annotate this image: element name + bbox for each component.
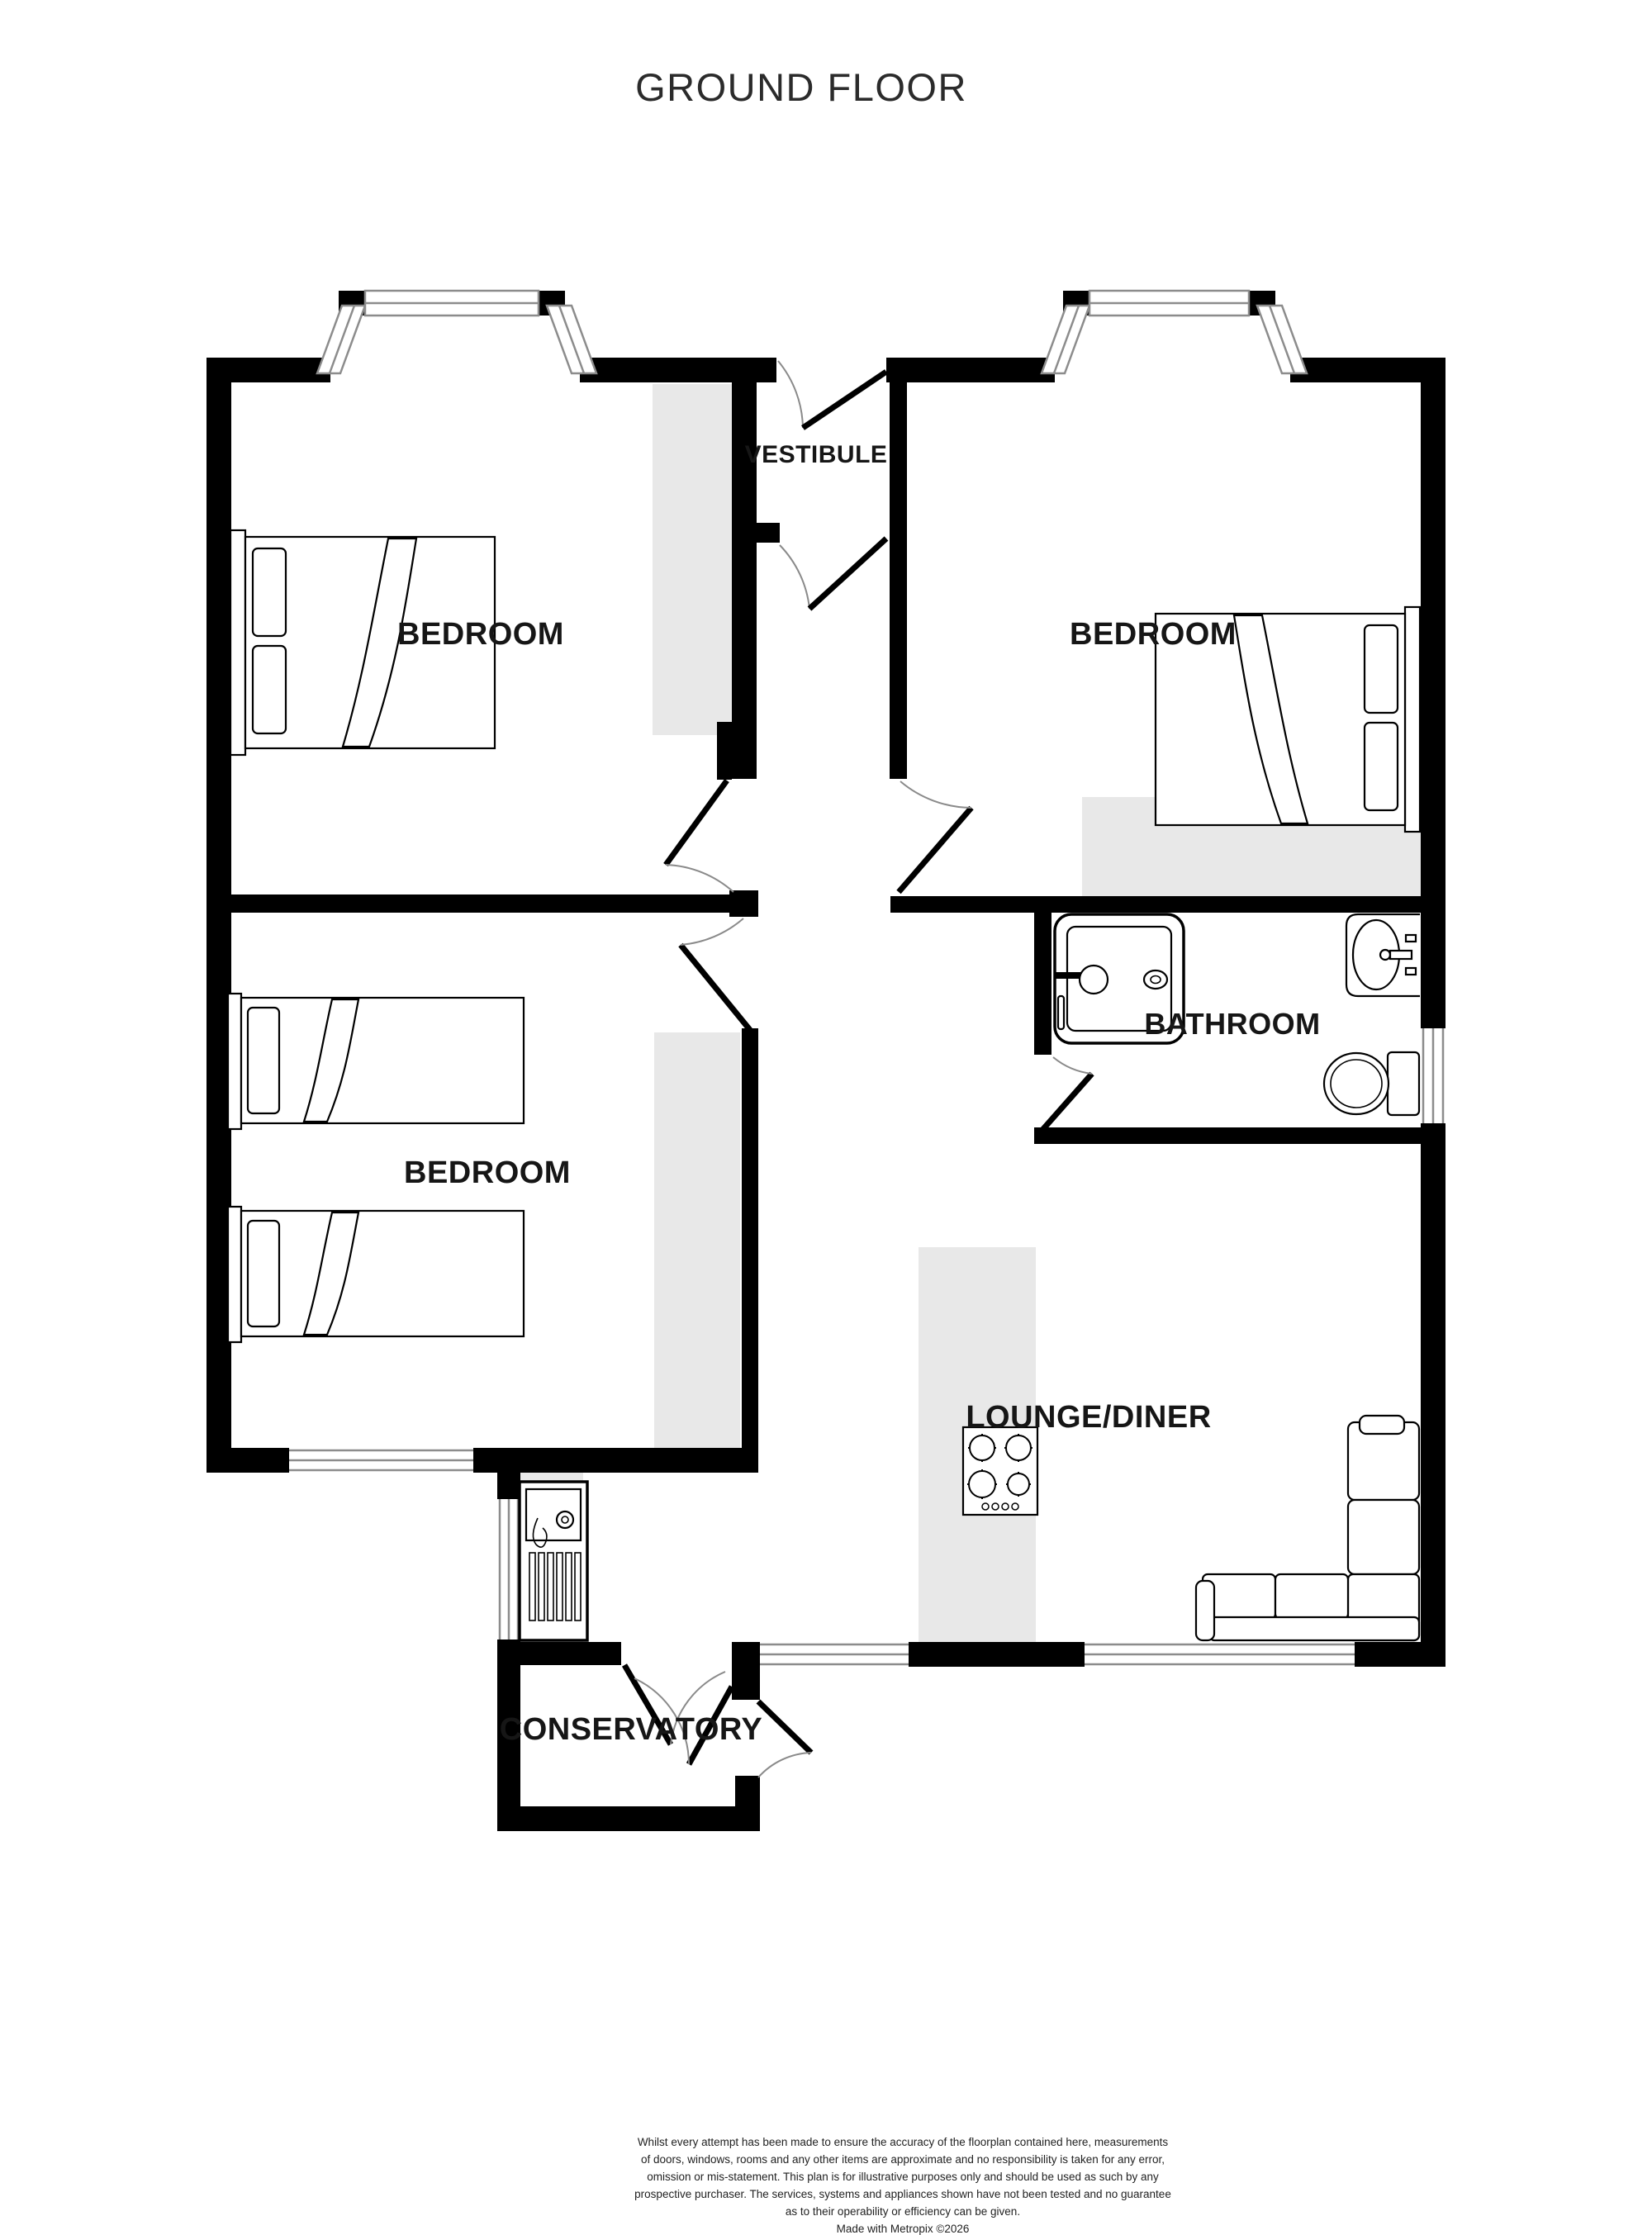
wall-bathroom-bottom bbox=[1034, 1127, 1445, 1144]
shower-handle bbox=[1058, 996, 1064, 1029]
gas-hob-icon bbox=[963, 1427, 1037, 1515]
knob bbox=[992, 1503, 999, 1510]
room-label-bedroom-top-right: BEDROOM bbox=[1070, 617, 1237, 652]
wall-bathroom-left bbox=[1034, 913, 1051, 1055]
door-leaf bbox=[681, 945, 750, 1030]
single-bed-icon bbox=[228, 1207, 524, 1342]
basin-tap bbox=[1390, 951, 1412, 959]
floorplan-drawing: GROUND FLOOR bbox=[0, 0, 1652, 2235]
door-arc bbox=[681, 918, 743, 945]
burner bbox=[1008, 1473, 1029, 1495]
room-label-bedroom-bottom-left: BEDROOM bbox=[404, 1155, 571, 1190]
door-bedroom-bottom-left bbox=[681, 918, 750, 1030]
shower-drain bbox=[1144, 970, 1167, 989]
bed-pillow bbox=[253, 548, 286, 636]
kitchen-sink-icon bbox=[520, 1482, 587, 1640]
bed-pillow bbox=[248, 1008, 279, 1113]
bed-headboard bbox=[1405, 607, 1420, 832]
wall-bedroom-bottom-left-right bbox=[742, 1028, 758, 1448]
bed-mattress bbox=[241, 1211, 524, 1336]
wash-basin-icon bbox=[1346, 914, 1420, 996]
room-label-bathroom: BATHROOM bbox=[1144, 1007, 1320, 1041]
wall-vestibule-right bbox=[890, 358, 907, 779]
floorplan-page: GROUND FLOOR bbox=[0, 0, 1652, 2235]
room-label-bedroom-top-left: BEDROOM bbox=[397, 617, 564, 652]
vestibule-inner-door bbox=[780, 539, 886, 609]
sofa-armrest bbox=[1196, 1581, 1214, 1640]
door-leaf bbox=[899, 808, 971, 892]
door-bathroom bbox=[1042, 1057, 1092, 1130]
wall-door-stub-bedroom-top-left bbox=[717, 722, 732, 780]
knob bbox=[982, 1503, 989, 1510]
door-arc bbox=[900, 781, 971, 808]
wall-bedroom-bottom-b bbox=[473, 1448, 758, 1473]
bay-window-bedroom-top-left bbox=[302, 291, 608, 382]
wall-conservatory-right bbox=[735, 1776, 760, 1831]
shower-head bbox=[1080, 966, 1108, 994]
door-arc bbox=[666, 865, 733, 892]
disclaimer-line: Whilst every attempt has been made to en… bbox=[638, 2136, 1169, 2148]
bed-mattress bbox=[241, 998, 524, 1123]
burner bbox=[970, 1435, 995, 1460]
basin-plug bbox=[1380, 950, 1390, 960]
corner-sofa-icon bbox=[1196, 1416, 1419, 1640]
door-arc bbox=[1053, 1057, 1092, 1074]
disclaimer-line: prospective purchaser. The services, sys… bbox=[634, 2188, 1171, 2200]
knob bbox=[1012, 1503, 1018, 1510]
sofa-front-edge bbox=[1209, 1617, 1419, 1640]
front-door bbox=[778, 361, 886, 428]
page-title: GROUND FLOOR bbox=[635, 65, 967, 109]
basin-tap-handle bbox=[1406, 935, 1416, 942]
door-arc bbox=[758, 1753, 811, 1777]
door-leaf bbox=[803, 372, 886, 428]
sink-plug bbox=[557, 1511, 573, 1528]
sofa-back-cushion bbox=[1348, 1500, 1419, 1574]
room-label-conservatory: CONSERVATORY bbox=[500, 1712, 763, 1747]
door-conservatory-side bbox=[758, 1701, 811, 1777]
wall-sink-nook-bottom bbox=[497, 1642, 621, 1665]
bed-pillow bbox=[1365, 723, 1398, 810]
room-label-lounge-diner: LOUNGE/DINER bbox=[966, 1400, 1211, 1435]
door-bedroom-top-left bbox=[666, 781, 733, 892]
bed-headboard bbox=[228, 1207, 241, 1342]
door-leaf bbox=[809, 539, 886, 609]
door-leaf bbox=[1042, 1074, 1092, 1130]
wall-top-3 bbox=[886, 358, 1028, 382]
bed-headboard bbox=[230, 530, 245, 755]
disclaimer-line: omission or mis-statement. This plan is … bbox=[647, 2171, 1159, 2183]
disclaimer-line: of doors, windows, rooms and any other i… bbox=[641, 2153, 1165, 2166]
bed-pillow bbox=[248, 1221, 279, 1326]
burner bbox=[1006, 1435, 1031, 1460]
knob bbox=[1002, 1503, 1009, 1510]
door-leaf bbox=[666, 781, 727, 865]
wall-lounge-bottom-corner bbox=[1355, 1642, 1445, 1667]
toilet-icon bbox=[1324, 1052, 1419, 1115]
single-bed-icon bbox=[228, 994, 524, 1129]
toilet-bowl bbox=[1324, 1053, 1389, 1114]
door-arc bbox=[778, 361, 803, 428]
wall-bedroom-bottom-a bbox=[206, 1448, 289, 1473]
bed-pillow bbox=[253, 646, 286, 733]
wall-lounge-bottom-mid bbox=[909, 1642, 1085, 1667]
basin-tap-handle bbox=[1406, 968, 1416, 975]
bed-pillow bbox=[1365, 625, 1398, 713]
wall-corner-block-hall bbox=[729, 890, 758, 917]
sofa-seat-cushion bbox=[1275, 1574, 1348, 1619]
wardrobe-shading-bedroom-bottom-left bbox=[654, 1032, 740, 1450]
toilet-cistern bbox=[1388, 1052, 1419, 1115]
burner bbox=[969, 1471, 995, 1497]
credit-line: Made with Metropix ©2026 bbox=[837, 2223, 970, 2235]
wall-hall-bathroom-top bbox=[890, 896, 1445, 913]
wall-top-2 bbox=[588, 358, 776, 382]
sofa-armrest bbox=[1360, 1416, 1404, 1434]
door-leaf bbox=[758, 1701, 811, 1753]
wall-bedroom-divider bbox=[206, 894, 743, 913]
disclaimer: Whilst every attempt has been made to en… bbox=[634, 2136, 1171, 2235]
wall-lounge-west-block bbox=[732, 1642, 760, 1700]
wall-conservatory-bottom bbox=[497, 1806, 760, 1831]
door-arc bbox=[780, 545, 809, 609]
bay-window-bedroom-top-right bbox=[1027, 291, 1318, 382]
wall-right-exterior bbox=[1421, 358, 1445, 1667]
wall-vestibule-stub bbox=[757, 523, 780, 543]
room-label-vestibule: VESTIBULE bbox=[745, 441, 888, 468]
wardrobe-shading-bedroom-top-left bbox=[653, 384, 733, 735]
disclaimer-line: as to their operability or efficiency ca… bbox=[786, 2205, 1020, 2218]
door-bedroom-top-right bbox=[899, 781, 971, 892]
bed-headboard bbox=[228, 994, 241, 1129]
